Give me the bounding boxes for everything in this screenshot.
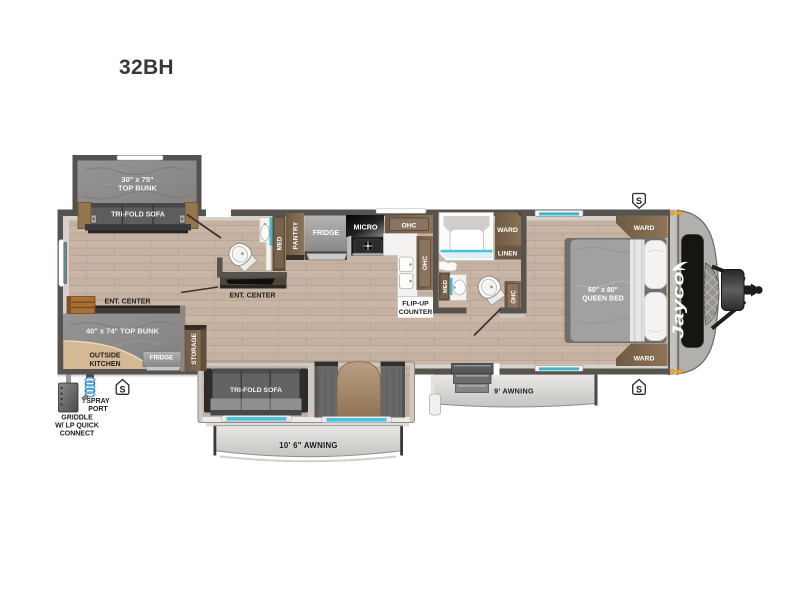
svg-text:OUTSIDE: OUTSIDE [89, 353, 120, 360]
svg-text:WARD: WARD [634, 356, 655, 363]
svg-text:CONNECT: CONNECT [60, 431, 95, 438]
svg-text:COUNTER: COUNTER [399, 309, 433, 316]
svg-text:10' 6" AWNING: 10' 6" AWNING [279, 441, 338, 450]
svg-text:TRI-FOLD SOFA: TRI-FOLD SOFA [111, 212, 165, 219]
svg-text:WARD: WARD [634, 225, 655, 232]
svg-text:TRI-FOLD SOFA: TRI-FOLD SOFA [230, 387, 282, 394]
svg-text:OHC: OHC [422, 256, 429, 271]
svg-text:WARD: WARD [497, 227, 518, 234]
svg-text:S: S [636, 196, 642, 206]
svg-text:QUEEN BED: QUEEN BED [582, 296, 624, 303]
svg-text:FRIDGE: FRIDGE [150, 355, 173, 362]
svg-text:Jayco: Jayco [670, 271, 688, 339]
svg-text:60" x 80": 60" x 80" [588, 287, 618, 294]
svg-text:MED: MED [276, 236, 283, 250]
svg-text:MED: MED [443, 280, 449, 293]
svg-text:PANTRY: PANTRY [292, 221, 299, 249]
svg-text:PORT: PORT [88, 406, 108, 413]
svg-text:ENT. CENTER: ENT. CENTER [230, 293, 276, 300]
svg-text:S: S [119, 385, 125, 395]
svg-text:OHC: OHC [512, 290, 518, 304]
svg-text:OHC: OHC [401, 223, 416, 230]
svg-text:FLIP-UP: FLIP-UP [402, 301, 429, 308]
svg-text:9' AWNING: 9' AWNING [494, 387, 534, 396]
svg-text:ENT. CENTER: ENT. CENTER [105, 299, 151, 306]
svg-text:KITCHEN: KITCHEN [89, 361, 120, 368]
svg-text:GRIDDLE: GRIDDLE [61, 415, 93, 422]
svg-text:MICRO: MICRO [354, 223, 378, 232]
svg-text:SPRAY: SPRAY [86, 398, 110, 405]
svg-text:STORAGE: STORAGE [191, 333, 198, 365]
svg-text:S: S [636, 385, 642, 395]
svg-text:32BH: 32BH [119, 56, 174, 79]
svg-text:40" x 74" TOP BUNK: 40" x 74" TOP BUNK [86, 327, 160, 336]
svg-text:LINEN: LINEN [498, 251, 518, 258]
svg-text:TOP BUNK: TOP BUNK [118, 184, 157, 193]
svg-text:W/ LP QUICK: W/ LP QUICK [55, 423, 99, 430]
svg-text:FRIDGE: FRIDGE [313, 230, 340, 237]
